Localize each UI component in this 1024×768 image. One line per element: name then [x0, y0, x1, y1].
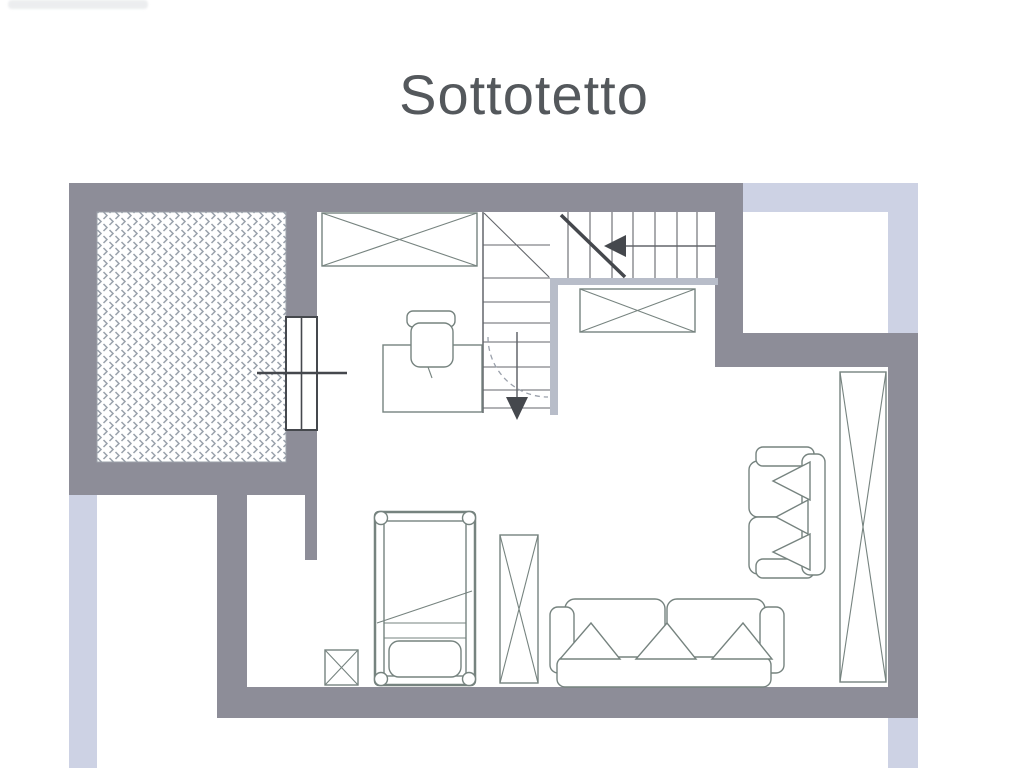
wall-right [888, 367, 918, 718]
wall-top [69, 183, 743, 212]
single-bed [375, 512, 476, 686]
terrace-hatched-area [97, 212, 286, 462]
bed-post [463, 512, 476, 525]
roof-edge-right-lower [888, 718, 918, 768]
sofa-two-seat [749, 447, 825, 578]
bed-post [375, 512, 388, 525]
stair-partition-vertical [550, 278, 558, 415]
wall-left [69, 183, 97, 495]
wardrobe-x-right [840, 372, 886, 682]
bed-post [463, 673, 476, 686]
stair-arrow-left-icon [604, 235, 626, 257]
floor-plan-page: Sottotetto [0, 0, 1024, 768]
wall-stub [305, 495, 317, 560]
stair-partition-horizontal [558, 278, 718, 285]
nightstand [325, 650, 358, 685]
sofa-backrest [557, 657, 771, 687]
sofa-three-seat [550, 599, 784, 687]
wardrobe-x-landing [580, 289, 695, 332]
roof-edge-right-upper [888, 212, 918, 333]
wall-terrace-bottom [69, 462, 317, 495]
wall-lower-left [217, 495, 247, 687]
roof-edge-top [743, 183, 918, 212]
wardrobe-x-mid [500, 535, 538, 683]
wall-bottom [217, 687, 918, 718]
stair-treads-horizontal-flight [568, 212, 697, 278]
bed-pillow [389, 641, 461, 677]
terrace [97, 212, 286, 462]
wardrobe-x-top [322, 213, 477, 266]
bed-post [375, 673, 388, 686]
wall-void-bottom [715, 333, 918, 367]
roof-edge-left [69, 495, 97, 768]
floor-plan-drawing [0, 0, 1024, 768]
